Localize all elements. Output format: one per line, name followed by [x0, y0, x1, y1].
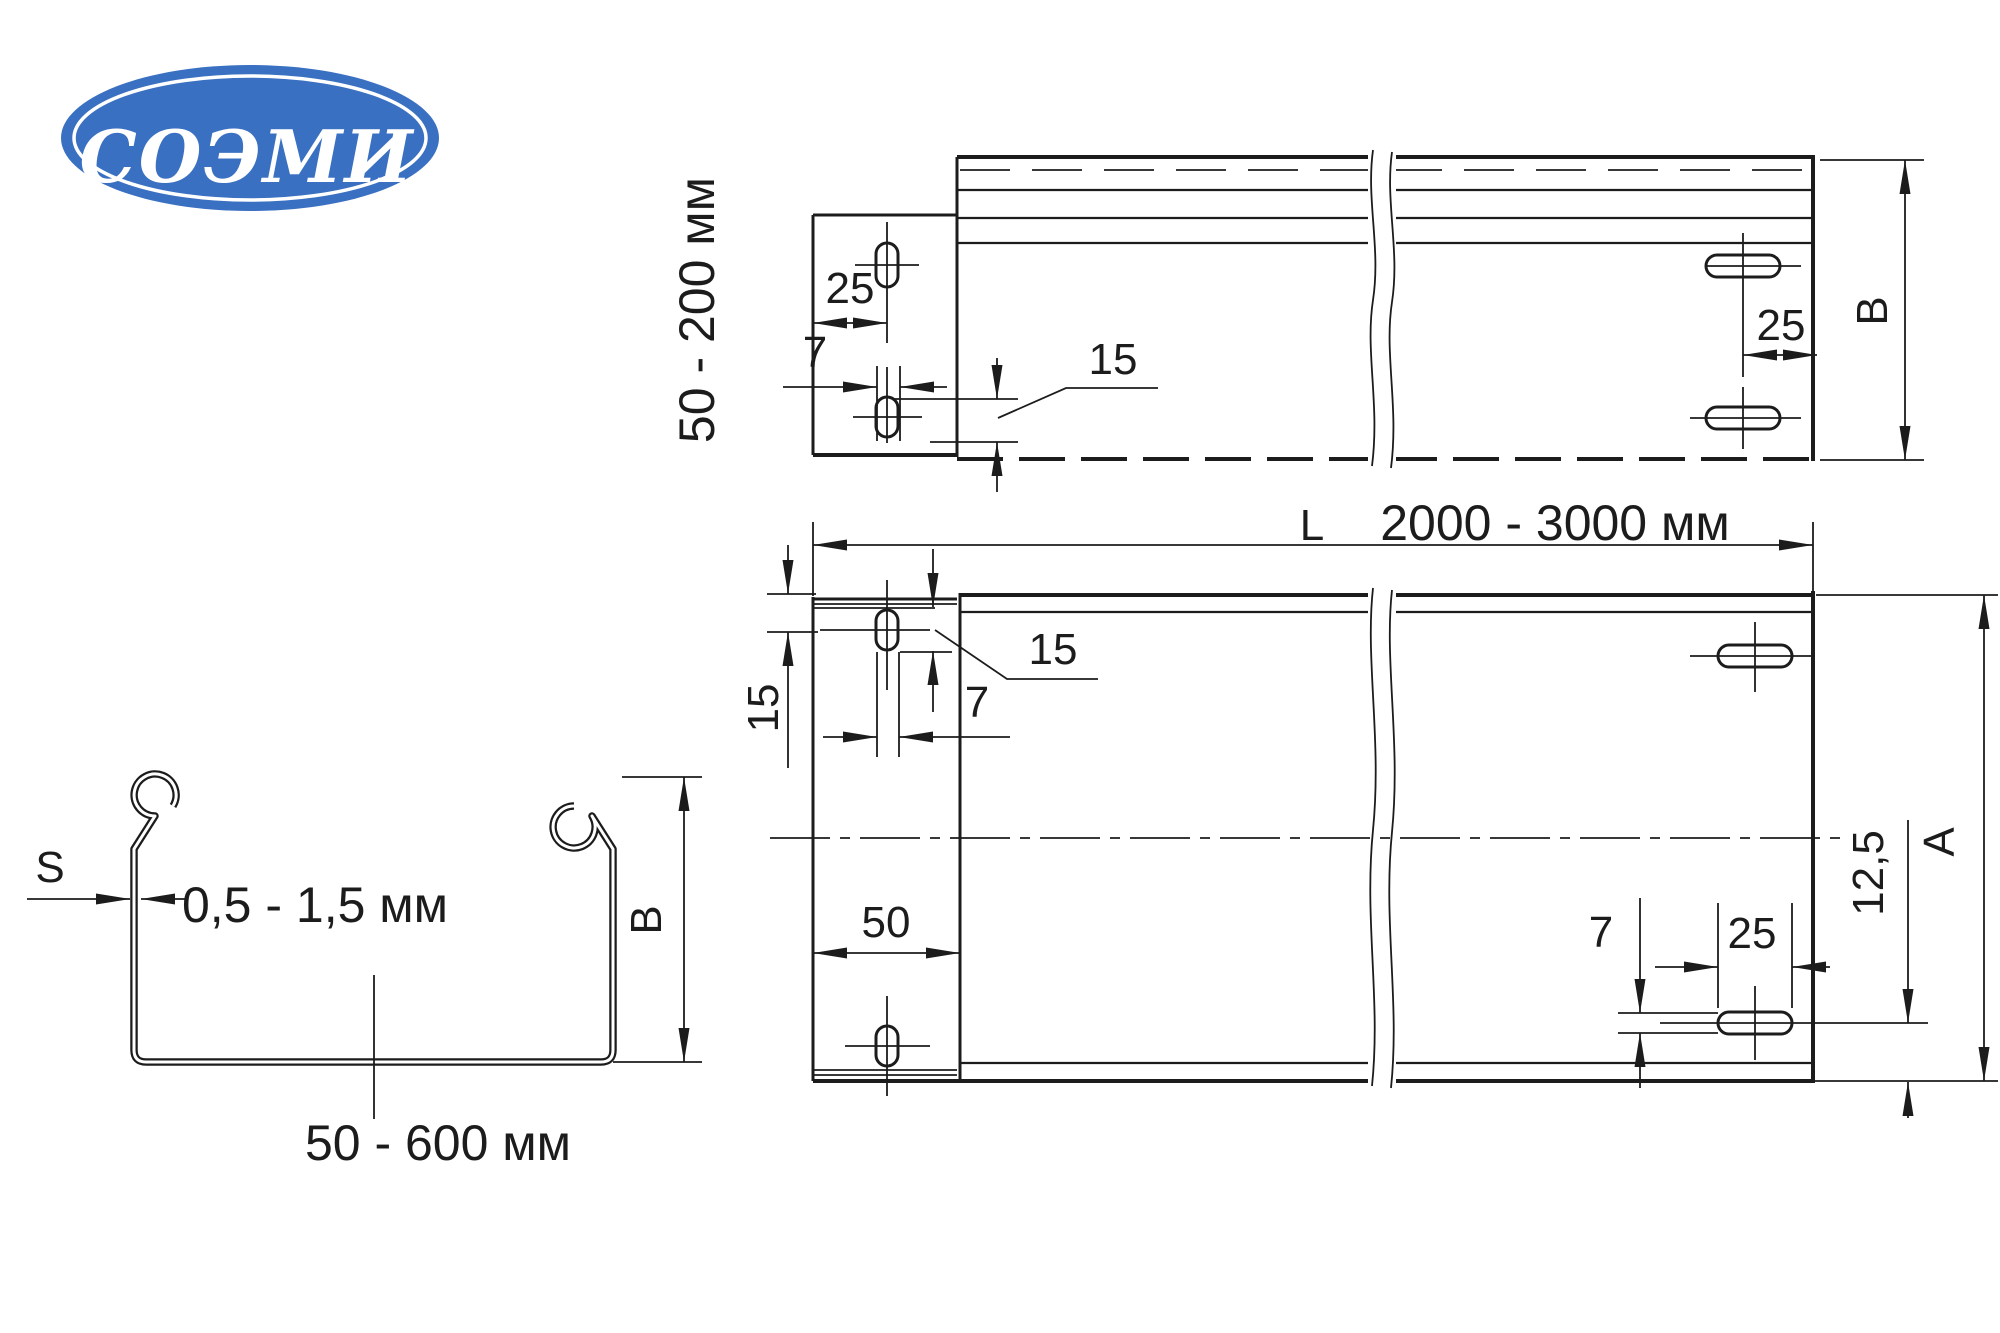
section-height-B: B [622, 905, 671, 934]
dim-right-slot-width: 7 [1589, 908, 1613, 957]
technical-drawing: СОЭМИ [0, 0, 2000, 1333]
dim-plan-slot-length: 15 [1029, 625, 1078, 674]
thickness-range: 0,5 - 1,5 мм [182, 877, 448, 933]
logo-text: СОЭМИ [79, 114, 414, 199]
cross-section: S 0,5 - 1,5 мм B 50 - 600 мм [27, 774, 702, 1171]
side-view-outline [813, 155, 1813, 461]
dim-right-slot-length: 25 [1728, 909, 1777, 958]
company-logo: СОЭМИ [61, 65, 439, 211]
side-view: 25 7 15 25 B 50 - 200 мм [669, 149, 1924, 492]
length-symbol: L [1300, 501, 1324, 550]
side-view-break [1368, 149, 1396, 469]
dim-edge-to-slot-center: 15 [739, 684, 788, 733]
dim-slot-length: 15 [1089, 335, 1138, 384]
plan-view: L 2000 - 3000 мм 15 15 7 50 7 25 12,5 A [739, 495, 1998, 1118]
thickness-symbol: S [35, 843, 64, 892]
dim-edge-to-slot: 25 [826, 264, 875, 313]
dim-tab-length: 50 [862, 898, 911, 947]
dim-height-B: B [1848, 296, 1897, 325]
dim-slot-width: 7 [803, 328, 827, 377]
dim-end-to-slot: 25 [1757, 301, 1806, 350]
drawing-page: СОЭМИ [0, 0, 2000, 1333]
dim-plan-slot-width: 7 [965, 678, 989, 727]
dim-slot-center-to-edge: 12,5 [1844, 830, 1893, 916]
dim-width-A: A [1915, 827, 1964, 857]
side-view-slots [853, 222, 1801, 449]
plan-view-outline [813, 591, 1813, 1083]
side-height-range: 50 - 200 мм [669, 177, 725, 443]
length-range: 2000 - 3000 мм [1380, 495, 1730, 551]
width-range: 50 - 600 мм [305, 1115, 571, 1171]
